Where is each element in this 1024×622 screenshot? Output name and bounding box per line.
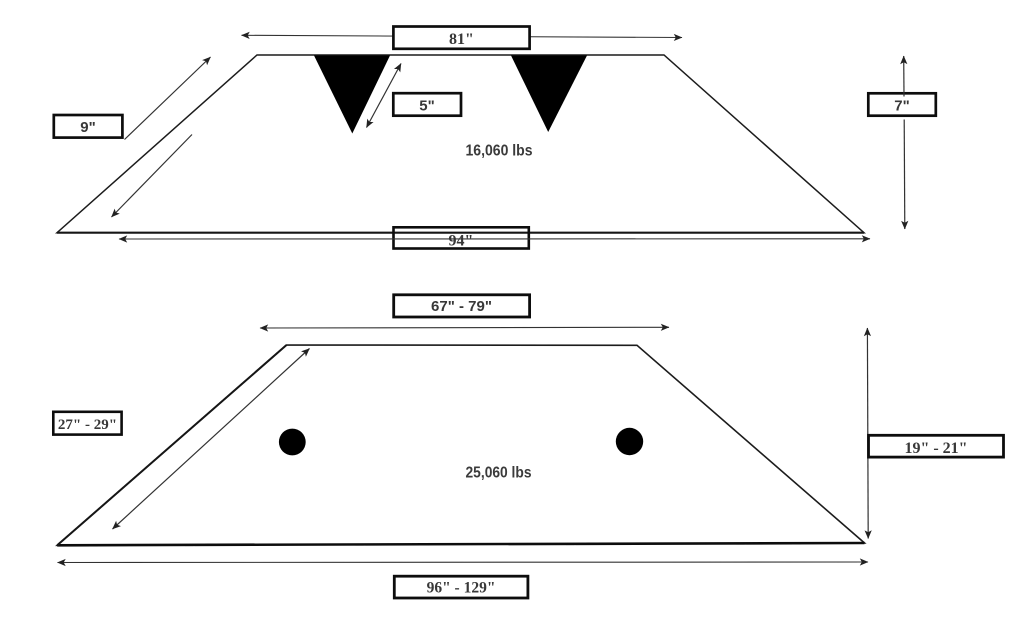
svg-text:81": 81" — [449, 31, 474, 48]
svg-text:25,060 lbs: 25,060 lbs — [466, 465, 532, 482]
svg-text:16,060 lbs: 16,060 lbs — [466, 143, 533, 160]
svg-text:27" - 29": 27" - 29" — [58, 417, 117, 433]
svg-text:5": 5" — [419, 98, 434, 115]
svg-text:19" - 21": 19" - 21" — [904, 440, 967, 457]
svg-text:9": 9" — [80, 119, 95, 136]
svg-text:67" - 79": 67" - 79" — [431, 298, 492, 315]
svg-text:94": 94" — [449, 233, 474, 250]
svg-text:96" - 129": 96" - 129" — [427, 580, 496, 597]
svg-text:7": 7" — [894, 98, 909, 115]
